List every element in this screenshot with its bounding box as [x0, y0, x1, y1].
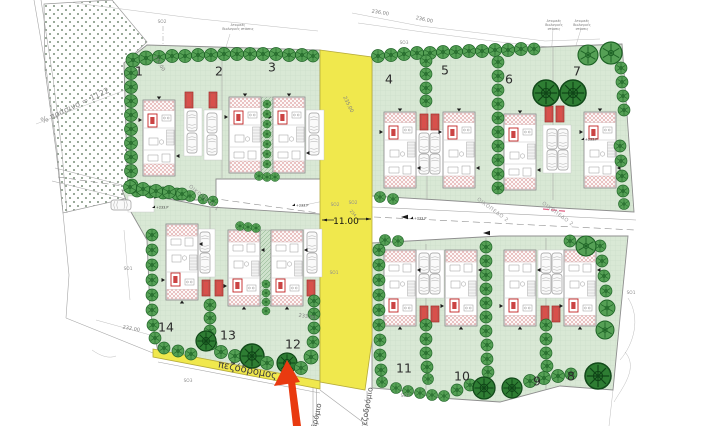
svg-text:στάσεις: στάσεις — [576, 27, 589, 31]
survey-label-so3: SO3 — [400, 40, 409, 46]
planter — [556, 106, 564, 122]
tree-icon — [146, 289, 158, 301]
tree-icon — [420, 68, 432, 80]
survey-label-so1: SO1 — [124, 266, 133, 272]
tree-icon — [617, 90, 629, 102]
tree-icon — [540, 347, 552, 359]
large-tree-icon — [560, 80, 586, 106]
planter — [420, 114, 428, 130]
car-icon — [187, 133, 197, 153]
tree-icon — [380, 235, 391, 246]
planter — [307, 280, 315, 296]
tree-icon — [172, 345, 184, 357]
tree-icon — [125, 123, 138, 136]
house-plot-8 — [560, 250, 601, 330]
tree-icon — [307, 336, 319, 348]
tree-icon — [236, 222, 245, 231]
car-icon — [419, 133, 429, 153]
tree-icon — [125, 81, 138, 94]
tree-icon — [540, 319, 552, 331]
tree-icon — [283, 49, 296, 62]
tree-icon — [393, 236, 404, 247]
car-icon — [419, 154, 429, 174]
car-icon — [430, 154, 440, 174]
tree-icon — [420, 82, 432, 94]
large-tree-icon — [502, 378, 522, 398]
tree-icon — [146, 244, 158, 256]
car-icon — [309, 113, 319, 133]
tree-icon — [600, 285, 612, 297]
plot-number-1: 1 — [135, 64, 143, 79]
planter — [431, 114, 439, 130]
tree-icon — [492, 182, 504, 194]
plot-number-10: 10 — [454, 369, 470, 384]
svg-text:στάσεις: στάσεις — [548, 27, 561, 31]
svg-text:+233.P: +233.P — [156, 206, 168, 210]
tree-icon — [262, 298, 270, 306]
tree-icon — [482, 366, 494, 378]
tree-icon — [420, 319, 432, 331]
tree-icon — [244, 223, 253, 232]
plot-number-2: 2 — [215, 64, 223, 79]
tree-icon — [481, 339, 493, 351]
tree-icon — [599, 300, 615, 316]
survey-label-so2: SO2 — [158, 19, 167, 25]
tree-icon — [295, 362, 308, 375]
tree-icon — [385, 49, 398, 62]
survey-label-so2: SO2 — [349, 200, 358, 206]
tree-icon — [373, 319, 385, 331]
tree-icon — [146, 274, 158, 286]
svg-text:+233.P: +233.P — [585, 138, 597, 142]
plot-number-12: 12 — [285, 337, 301, 352]
site-plan: 1 2 3 4 5 6 7 8 9 10 11 12 13 14 235.00 … — [0, 0, 705, 426]
tree-icon — [492, 98, 504, 110]
tree-icon — [450, 46, 463, 59]
house-plot-13 — [224, 230, 265, 310]
house-plot-11 — [380, 250, 421, 330]
tree-icon — [373, 274, 385, 286]
planter — [202, 280, 210, 296]
tree-icon — [618, 104, 630, 116]
tree-icon — [262, 280, 270, 288]
car-icon — [207, 135, 217, 155]
house-plot-3 — [269, 94, 310, 174]
svg-text:+233.P: +233.P — [414, 217, 426, 221]
car-icon — [200, 253, 210, 273]
tree-icon — [398, 48, 411, 61]
tree-icon — [163, 186, 176, 199]
house-plot-14 — [162, 224, 203, 304]
car-icon — [111, 200, 131, 210]
tree-icon — [492, 154, 504, 166]
tree-icon — [374, 349, 386, 361]
car-icon — [307, 232, 317, 252]
plot-number-6: 6 — [505, 72, 513, 87]
car-icon — [547, 150, 557, 170]
tree-icon — [616, 76, 628, 88]
tree-icon — [125, 137, 138, 150]
tree-icon — [263, 140, 271, 148]
tree-icon — [492, 168, 504, 180]
tree-icon — [540, 333, 552, 345]
tree-icon — [616, 170, 628, 182]
large-tree-icon — [196, 331, 216, 351]
tree-icon — [176, 188, 188, 200]
tree-icon — [255, 172, 264, 181]
tree-icon — [205, 49, 218, 62]
tree-icon — [451, 384, 463, 396]
tree-icon — [564, 235, 576, 247]
plot-number-11: 11 — [396, 361, 412, 376]
tree-icon — [263, 173, 272, 182]
tree-icon — [614, 140, 626, 152]
tree-icon — [185, 348, 197, 360]
sidewalk-label: πεζοδρόμιο — [358, 386, 374, 426]
tree-icon — [427, 390, 438, 401]
tree-icon — [617, 185, 629, 197]
tree-icon — [420, 333, 432, 345]
tree-icon — [480, 255, 492, 267]
tree-icon — [372, 50, 385, 63]
tree-icon — [263, 110, 271, 118]
car-icon — [187, 111, 197, 131]
car-icon — [547, 129, 557, 149]
tree-icon — [480, 311, 492, 323]
tree-icon — [598, 270, 610, 282]
tree-icon — [146, 229, 158, 241]
tree-icon — [502, 44, 515, 57]
car-icon — [419, 274, 429, 294]
tree-icon — [541, 360, 553, 372]
road-width-dimension: 11.00 — [333, 217, 359, 227]
sidewalk-label: πεζοδρόμιο — [306, 402, 324, 426]
tree-icon — [388, 194, 399, 205]
survey-label-so3: SO3 — [184, 378, 193, 384]
tree-icon — [263, 100, 271, 108]
tree-icon — [480, 241, 492, 253]
house-plot-9 — [500, 250, 541, 330]
tree-icon — [263, 160, 271, 168]
house-plot-12 — [267, 230, 308, 310]
tree-icon — [166, 50, 179, 63]
planter — [185, 92, 193, 108]
tree-icon — [244, 48, 257, 61]
tree-icon — [158, 342, 170, 354]
tree-icon — [373, 289, 385, 301]
tree-icon — [552, 370, 565, 383]
planter — [215, 280, 223, 296]
tree-icon — [492, 70, 504, 82]
tree-icon — [263, 120, 271, 128]
planter — [431, 306, 439, 322]
tree-icon — [489, 44, 502, 57]
car-icon — [200, 232, 210, 252]
house-plot-2 — [225, 94, 266, 174]
tree-icon — [415, 388, 426, 399]
tree-icon — [307, 50, 319, 62]
tree-icon — [481, 353, 493, 365]
tree-icon — [146, 259, 158, 271]
tree-icon — [204, 299, 216, 311]
tree-icon — [374, 334, 386, 346]
tree-icon — [437, 46, 450, 59]
tree-icon — [492, 140, 504, 152]
plot-number-13: 13 — [220, 328, 236, 343]
car-icon — [541, 253, 551, 273]
large-tree-icon — [585, 363, 611, 389]
tree-icon — [492, 84, 504, 96]
planter — [545, 106, 553, 122]
tree-icon — [218, 48, 231, 61]
plot-number-7: 7 — [573, 64, 581, 79]
tree-icon — [373, 304, 385, 316]
plot-number-14: 14 — [158, 320, 174, 335]
tree-icon — [578, 45, 598, 65]
survey-label-so3: SO3 — [401, 393, 410, 399]
contour-label-236: 236.00 — [371, 9, 389, 18]
tree-icon — [421, 361, 433, 373]
tree-icon — [262, 289, 270, 297]
tree-icon — [263, 150, 271, 158]
tree-icon — [492, 56, 504, 68]
car-icon — [309, 135, 319, 155]
tree-icon — [125, 109, 138, 122]
tree-icon — [576, 236, 596, 256]
tree-icon — [124, 181, 137, 194]
svg-text:Βιολογικές στάσεις: Βιολογικές στάσεις — [222, 27, 253, 31]
contour-label-236: 236.00 — [415, 15, 433, 25]
large-tree-icon — [473, 377, 495, 399]
tree-icon — [262, 307, 270, 315]
planter — [552, 306, 560, 322]
car-icon — [307, 253, 317, 273]
tree-icon — [439, 391, 450, 402]
tree-icon — [252, 224, 261, 233]
tree-icon — [600, 42, 622, 64]
tree-icon — [150, 185, 163, 198]
plot-number-8: 8 — [567, 369, 575, 384]
tree-icon — [308, 295, 320, 307]
plot-number-3: 3 — [268, 60, 276, 75]
tree-icon — [373, 259, 385, 271]
tree-icon — [480, 269, 492, 281]
car-icon — [552, 253, 562, 273]
tree-icon — [304, 350, 318, 364]
tree-icon — [373, 244, 385, 256]
house-plot-5 — [439, 109, 480, 189]
tree-icon — [615, 62, 627, 74]
contour-label-232: 232.00 — [122, 324, 140, 333]
tree-icon — [492, 112, 504, 124]
tree-icon — [596, 321, 614, 339]
tree-icon — [391, 383, 402, 394]
tree-icon — [420, 55, 432, 67]
tree-icon — [125, 151, 138, 164]
tree-icon — [125, 95, 138, 108]
tree-icon — [125, 165, 138, 178]
tree-icon — [515, 43, 528, 56]
tree-icon — [231, 48, 244, 61]
planter — [209, 92, 217, 108]
tree-icon — [179, 50, 192, 63]
tree-icon — [480, 325, 492, 337]
tree-icon — [271, 173, 280, 182]
tree-icon — [492, 126, 504, 138]
car-icon — [207, 113, 217, 133]
tree-icon — [296, 49, 309, 62]
svg-text:+233.P: +233.P — [296, 204, 308, 208]
car-icon — [430, 274, 440, 294]
car-icon — [558, 150, 568, 170]
tree-icon — [146, 304, 158, 316]
driveway-pad — [128, 196, 154, 212]
car-icon — [541, 274, 551, 294]
tree-icon — [596, 255, 608, 267]
car-icon — [430, 133, 440, 153]
plot-number-5: 5 — [441, 63, 449, 78]
tree-icon — [420, 95, 432, 107]
tree-icon — [375, 192, 386, 203]
tree-icon — [377, 377, 388, 388]
house-plot-1 — [139, 97, 180, 177]
plot-number-4: 4 — [385, 72, 393, 87]
tree-icon — [263, 130, 271, 138]
tree-icon — [480, 297, 492, 309]
tree-icon — [420, 347, 432, 359]
car-icon — [430, 253, 440, 273]
tree-icon — [423, 374, 434, 385]
tree-icon — [615, 155, 627, 167]
tree-icon — [137, 183, 150, 196]
large-tree-icon — [533, 80, 559, 106]
house-plot-6 — [500, 111, 541, 191]
tree-icon — [308, 322, 320, 334]
septic-note: Ατομικές Βιολογικές στάσεις — [573, 19, 591, 31]
tree-icon — [619, 199, 630, 210]
tree-icon — [192, 49, 205, 62]
tree-icon — [528, 43, 540, 55]
tree-icon — [204, 312, 216, 324]
tree-icon — [476, 45, 489, 58]
car-icon — [558, 129, 568, 149]
tree-icon — [480, 283, 492, 295]
tree-icon — [215, 346, 228, 359]
plot-number-9: 9 — [533, 374, 541, 389]
tree-icon — [463, 45, 476, 58]
car-icon — [552, 274, 562, 294]
survey-label-so2: SO2 — [331, 202, 340, 208]
site-plan-drawing: 1 2 3 4 5 6 7 8 9 10 11 12 13 14 235.00 … — [0, 0, 705, 426]
house-plot-4 — [380, 109, 421, 189]
survey-label-so1: SO1 — [330, 270, 339, 276]
septic-note: Ατομικές Βιολογικές στάσεις — [545, 19, 563, 31]
house-plot-10 — [441, 250, 482, 330]
survey-label-so1: SO1 — [627, 290, 636, 296]
tree-icon — [375, 364, 387, 376]
